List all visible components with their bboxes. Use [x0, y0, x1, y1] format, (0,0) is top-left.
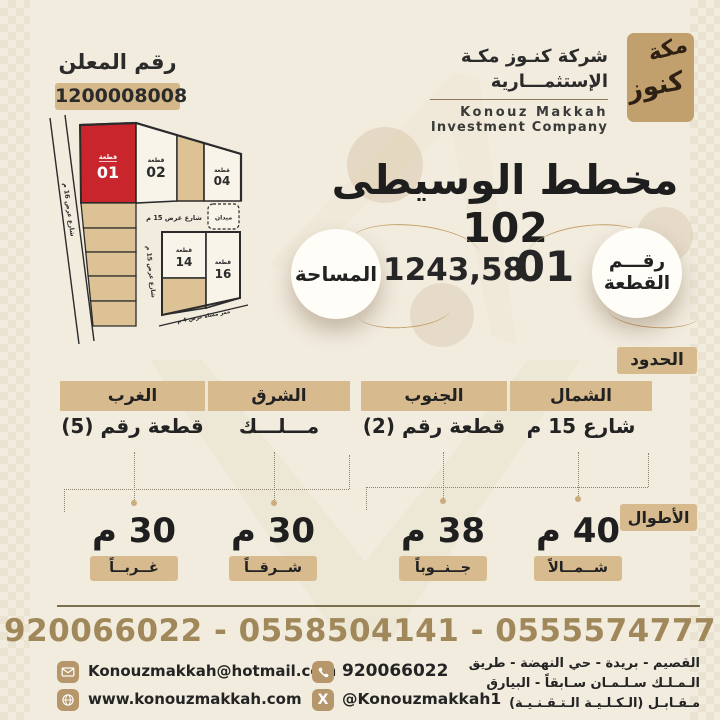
advertiser-number-badge: 1200008008 — [55, 83, 180, 110]
company-name-en-line1: Konouz Makkah — [408, 105, 608, 120]
boundary-value-south: قطعة رقم (2) — [361, 414, 507, 438]
phone-icon — [312, 661, 334, 683]
plot-number-label-line2: القطعة — [604, 273, 670, 295]
logo-calligraphy-word: كنوز — [627, 66, 686, 105]
plot-number-label-line1: رقـــم — [609, 251, 665, 273]
area-value: 1243,58 — [383, 252, 498, 288]
connector-line — [648, 453, 649, 487]
connector-line — [366, 487, 648, 488]
checker-texture-left — [0, 0, 30, 720]
map-plot-16-number: 16 — [215, 267, 232, 281]
plot-map: شارع عرض 16 م قطعة 01 قطعة 02 قطعة 04 شا… — [36, 112, 270, 350]
connector-dot — [440, 498, 446, 504]
plaza-label: ميدان — [215, 215, 233, 222]
address-block: القصيم - بريدة - حي النهضة - طريق الـمـل… — [438, 654, 700, 714]
map-plot-unlabeled — [91, 301, 136, 326]
connector-dot — [271, 500, 277, 506]
street-mid-label: شارع عرض 15 م — [144, 246, 156, 299]
connector-line — [134, 452, 135, 500]
connector-line — [349, 455, 350, 489]
map-plot-unlabeled — [86, 252, 136, 276]
street-top-label: شارع عرض 15 م — [146, 214, 202, 222]
map-plot-02-number: 02 — [146, 165, 165, 181]
envelope-icon — [57, 661, 79, 683]
company-name-ar-line1: شركة كنـوز مكـة — [461, 46, 608, 67]
length-value-west: 30 م — [69, 511, 199, 551]
company-name-english: Konouz Makkah Investment Company — [408, 105, 608, 135]
logo-calligraphy-word: مكة — [646, 33, 691, 66]
email-text: Konouzmakkah@hotmail.com — [88, 662, 336, 680]
connector-line — [64, 489, 349, 490]
connector-line — [274, 452, 275, 500]
website-text: www.konouzmakkah.com — [88, 690, 302, 708]
length-label-south: جــنــوباً — [399, 556, 487, 581]
connector-dot — [575, 496, 581, 502]
company-logo-mark: مكة كنوز — [627, 33, 694, 122]
map-plot-14-number: 14 — [176, 255, 193, 269]
map-plot-14-tag: قطعة — [176, 248, 192, 254]
boundary-header-south: الجنوب — [361, 381, 507, 411]
length-label-north: شــمــالاً — [534, 556, 622, 581]
map-plot-01-tag: قطعة — [99, 153, 117, 161]
boundary-header-east: الشرق — [208, 381, 350, 411]
x-icon-glyph: X — [318, 692, 329, 708]
company-name-ar-line2: الإستثمـــارية — [491, 71, 608, 92]
connector-line — [443, 452, 444, 498]
logo-divider — [430, 99, 608, 100]
length-label-west: غــربــاً — [90, 556, 178, 581]
length-value-south: 38 م — [378, 511, 508, 551]
map-plot-unlabeled — [88, 276, 136, 301]
company-name-en-line2: Investment Company — [408, 120, 608, 135]
address-line: مـقـابـل (الـكـلـيـة الـتـقـنـيـة) — [438, 694, 700, 714]
flyer-canvas: رقم المعلن 1200008008 شركة كنـوز مكـة ال… — [0, 0, 720, 720]
connector-line — [64, 489, 65, 512]
length-label-east: شــرقــاً — [229, 556, 317, 581]
phone-numbers-line: 920066022 - 0558504141 - 0555574777 — [0, 613, 720, 649]
contact-phone-text: 920066022 — [342, 661, 448, 681]
boundary-value-north: شارع 15 م — [510, 414, 652, 438]
connector-line — [366, 487, 367, 510]
company-name-arabic: شركة كنـوز مكـة الإستثمـــارية — [408, 44, 608, 94]
length-value-east: 30 م — [208, 511, 338, 551]
map-plot-16-tag: قطعة — [215, 260, 231, 266]
map-plot-unlabeled — [81, 203, 136, 228]
plot-number-value: 01 — [512, 242, 578, 291]
connector-line — [578, 452, 579, 496]
area-label: المساحة — [295, 262, 377, 286]
map-plot-02-tag: قطعة — [148, 157, 165, 164]
connector-dot — [131, 500, 137, 506]
globe-icon — [57, 689, 79, 711]
length-value-north: 40 م — [513, 511, 643, 551]
map-plot-unlabeled — [83, 228, 136, 252]
map-plot-unlabeled — [177, 135, 204, 201]
boundary-header-west: الغرب — [60, 381, 205, 411]
advertiser-number-label: رقم المعلن — [50, 50, 185, 74]
plot-number-circle: رقـــم القطعة — [592, 228, 682, 318]
address-line: الـمـلـك سـلـمـان سـابقاً - البيارق — [438, 674, 700, 694]
x-icon: X — [312, 689, 334, 711]
map-plot-01-number: 01 — [97, 163, 119, 182]
boundaries-section-badge: الحدود — [617, 347, 697, 374]
boundary-value-east: مـــلـــك — [208, 414, 350, 438]
boundary-header-north: الشمال — [510, 381, 652, 411]
map-plot-04-number: 04 — [214, 174, 231, 188]
boundary-value-west: قطعة رقم (5) — [60, 414, 205, 438]
footer-divider — [57, 605, 700, 607]
address-line: القصيم - بريدة - حي النهضة - طريق — [438, 654, 700, 674]
area-circle: المساحة — [291, 229, 381, 319]
